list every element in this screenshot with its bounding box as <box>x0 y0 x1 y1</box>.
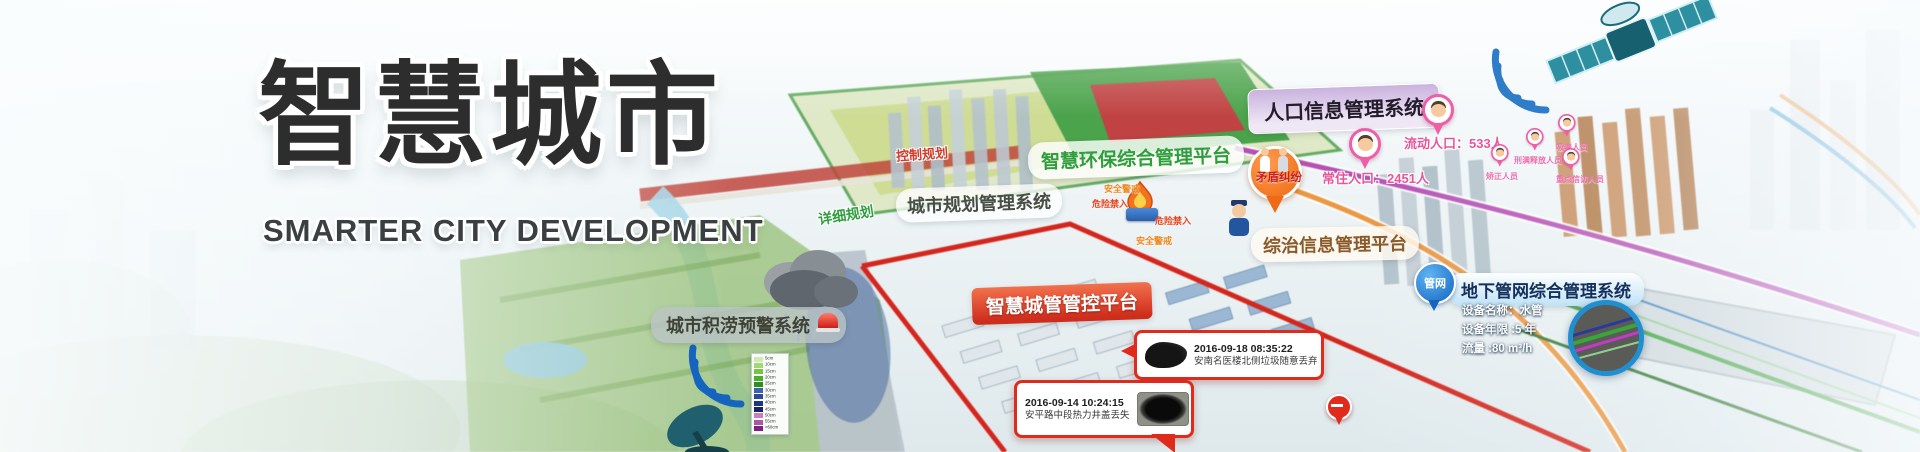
floating-person-pin <box>1422 94 1456 138</box>
legend-swatch <box>754 363 763 368</box>
legend-swatch <box>754 426 763 431</box>
pipe-info-panel: 设备名称：水管 设备年限 :5 年 流量 :80 m³/h <box>1462 302 1543 359</box>
legend-swatch <box>754 357 763 362</box>
pin-tip <box>1568 164 1575 171</box>
event-text-block: 2016-09-18 08:35:22 安南名医楼北侧垃圾随意丢弃 <box>1194 343 1318 368</box>
pipe-network-pin: 管网 <box>1414 262 1456 304</box>
label-city-planning: 城市规划管理系统 <box>895 183 1062 223</box>
smart-city-banner: 智慧城市 SMARTER CITY DEVELOPMENT <box>0 0 1920 452</box>
pipe-magnifier <box>1568 300 1644 376</box>
flood-warning-text: 城市积涝预警系统 <box>666 316 810 336</box>
legend-swatch <box>754 388 763 393</box>
event-desc: 安平路中段热力井盖丢失 <box>1025 410 1130 422</box>
legend-swatch <box>754 401 763 406</box>
legend-label: 5cm <box>765 357 773 361</box>
label-population-system: 人口信息管理系统 <box>1247 83 1440 135</box>
legend-label: 10cm <box>765 363 776 367</box>
event-desc: 安南名医楼北侧垃圾随意丢弃 <box>1194 356 1318 368</box>
page-subtitle: SMARTER CITY DEVELOPMENT <box>263 213 764 249</box>
pin-tip <box>1564 130 1571 137</box>
label-env-platform: 智慧环保综合管理平台 <box>1027 135 1244 180</box>
legend-label: 20cm <box>765 376 776 380</box>
flood-depth-legend: 5cm 10cm 15cm 20cm 25cm 30cm 35cm 40cm 4… <box>751 353 789 435</box>
event-callout-manhole: 2016-09-14 10:24:15 安平路中段热力井盖丢失 <box>1014 380 1194 438</box>
pin-tip <box>1497 160 1504 167</box>
no-entry-sign-pin <box>1326 394 1352 420</box>
callout-tail <box>1121 343 1137 359</box>
legend-swatch <box>754 413 763 418</box>
released-prisoners-pin <box>1526 128 1545 152</box>
pipe-info-name: 设备名称：水管 <box>1462 302 1543 321</box>
right-skyline <box>1750 30 1900 230</box>
event-text-block: 2016-09-14 10:24:15 安平路中段热力井盖丢失 <box>1025 397 1130 422</box>
alarm-siren-icon <box>818 313 838 329</box>
pin-face <box>1567 154 1575 161</box>
satellite-icon <box>1440 0 1770 115</box>
legend-row: >60cm <box>753 425 787 431</box>
dispute-text: 矛盾纠纷 <box>1256 169 1302 185</box>
control-plan-text: 控制规划 <box>895 142 948 165</box>
legend-label: 35cm <box>765 395 776 399</box>
event-time: 2016-09-14 10:24:15 <box>1025 397 1130 410</box>
label-flood-warning-system: 城市积涝预警系统 <box>651 307 846 343</box>
legend-label: 40cm <box>765 401 776 405</box>
dispute-pin-tip <box>1266 196 1284 213</box>
drug-users-pin <box>1558 114 1577 138</box>
legend-swatch <box>754 420 763 425</box>
floating-pop-text: 流动人口：533人 <box>1404 133 1504 152</box>
legend-label: 25cm <box>765 382 776 386</box>
pipe-info-age: 设备年限 :5 年 <box>1462 321 1543 340</box>
danger-no-entry-text-1: 危险禁入 <box>1092 197 1128 210</box>
security-cordon-text-1: 安全警戒 <box>1104 182 1140 195</box>
released-prisoners-text: 刑满释放人员 <box>1514 155 1562 166</box>
legend-label: 50cm <box>765 414 776 418</box>
callout-tail <box>1151 434 1175 452</box>
legend-swatch <box>754 394 763 399</box>
label-city-mgmt-platform: 智慧城管管控平台 <box>971 282 1152 325</box>
fire-truck-icon <box>1126 208 1158 221</box>
rain-cloud-icon <box>752 242 862 362</box>
petition-persons-text: 重点信访人员 <box>1556 174 1604 185</box>
legend-label: >60cm <box>765 426 778 430</box>
pin-face <box>1431 104 1446 117</box>
legend-swatch <box>754 407 763 412</box>
label-governance-platform: 综治信息管理平台 <box>1251 226 1420 263</box>
pin-face <box>1563 120 1571 127</box>
legend-swatch <box>754 382 763 387</box>
pin-tip <box>1532 144 1539 151</box>
satellite-dish-icon <box>655 340 765 452</box>
event-time: 2016-09-18 08:35:22 <box>1194 343 1318 356</box>
pin-face <box>1531 134 1539 141</box>
event-callout-garbage: 2016-09-18 08:35:22 安南名医楼北侧垃圾随意丢弃 <box>1134 330 1324 380</box>
legend-label: 15cm <box>765 370 776 374</box>
legend-swatch <box>754 369 763 374</box>
legend-swatch <box>754 376 763 381</box>
correction-persons-pin <box>1491 144 1510 168</box>
pin-face <box>1496 150 1504 157</box>
legend-label: 30cm <box>765 388 776 392</box>
petition-persons-pin <box>1562 148 1581 172</box>
pipe-info-flow: 流量 :80 m³/h <box>1462 340 1543 359</box>
garbage-photo <box>1145 342 1187 368</box>
resident-person-pin <box>1349 128 1383 172</box>
legend-label: 55cm <box>765 420 776 424</box>
correction-persons-text: 矫正人员 <box>1486 171 1518 182</box>
danger-no-entry-text-2: 危险禁入 <box>1155 214 1191 227</box>
security-cordon-text-2: 安全警戒 <box>1136 234 1172 247</box>
page-title: 智慧城市 <box>258 52 722 181</box>
resident-pop-text: 常住人口：2451人 <box>1322 168 1429 187</box>
legend-label: 45cm <box>765 407 776 411</box>
manhole-photo <box>1137 392 1189 426</box>
pin-face <box>1358 138 1373 151</box>
